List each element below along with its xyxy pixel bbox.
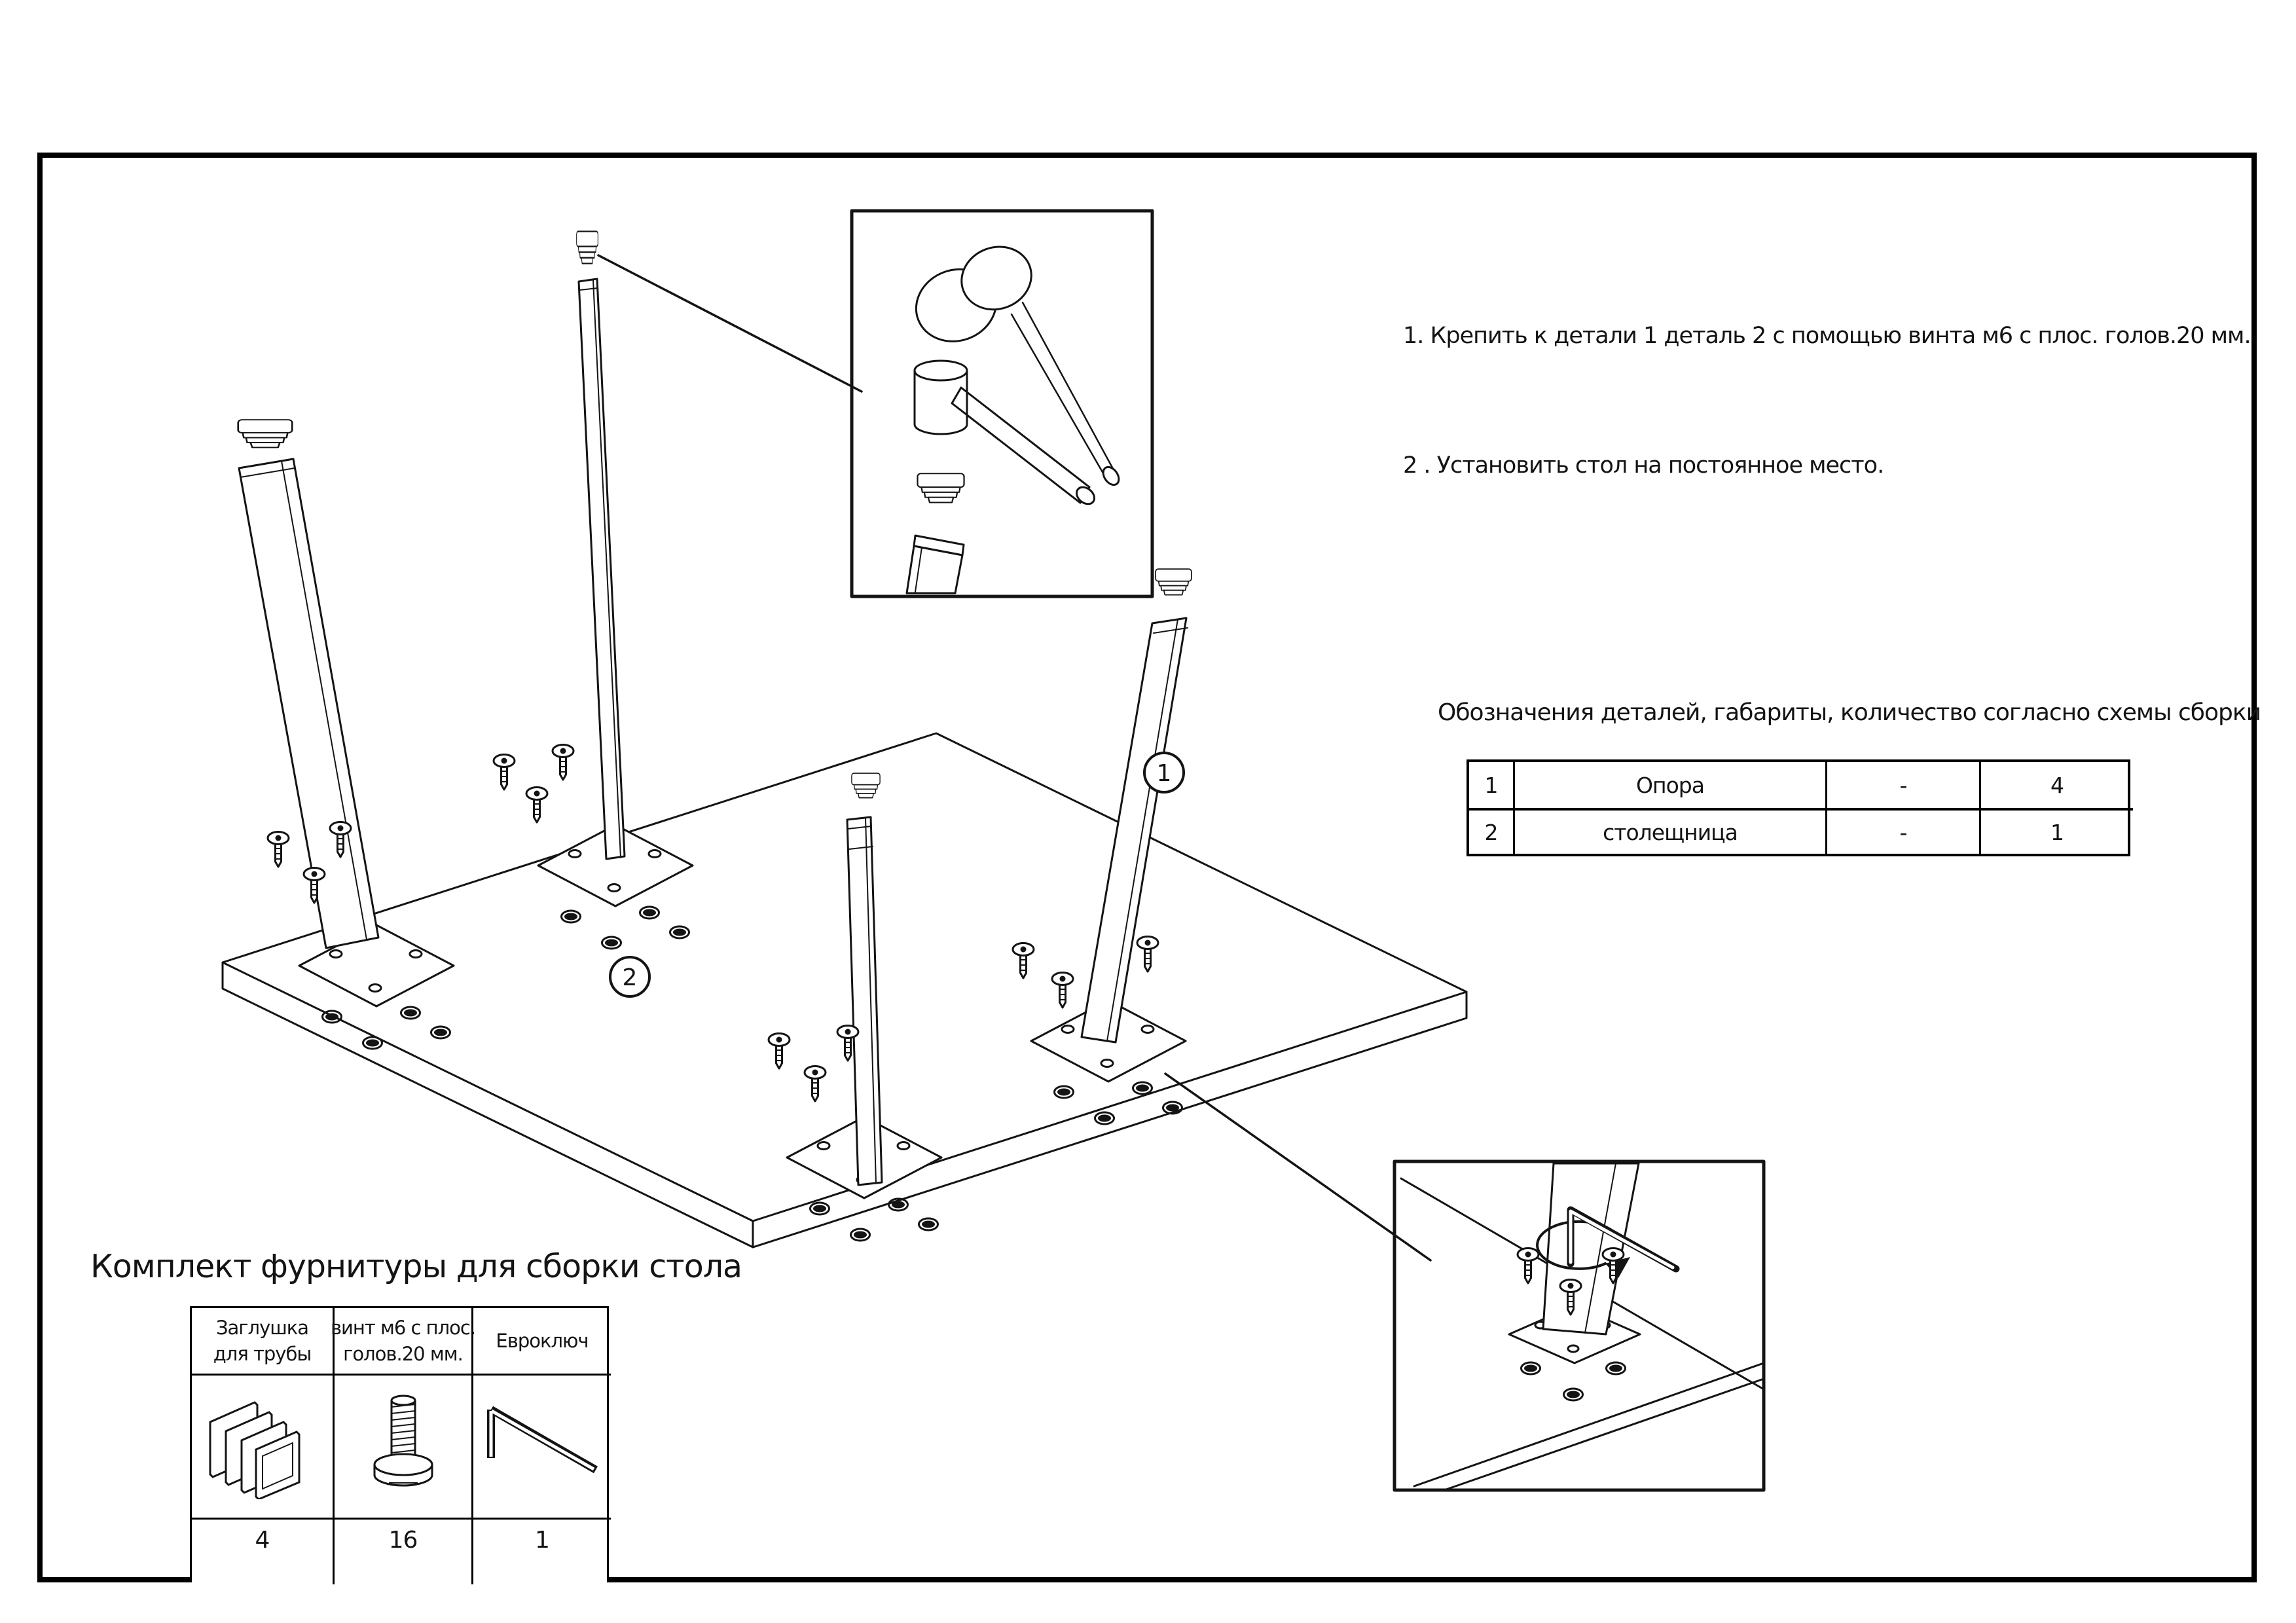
hardware-col2-header: винт м6 с плос. голов.20 мм. xyxy=(333,1308,471,1374)
parts-list-title: Обозначения деталей, габариты, количеств… xyxy=(1438,699,2261,726)
parts-row2-qty: 1 xyxy=(1979,808,2133,854)
assembly-instruction-sheet: 1 2 1. Крепить к детали 1 деталь 2 с пом… xyxy=(0,0,2296,1623)
hardware-col1-header: Заглушка для трубы xyxy=(192,1308,333,1374)
hardware-col1-line2: для трубы xyxy=(213,1341,312,1367)
hardware-col1-line1: Заглушка xyxy=(216,1315,308,1341)
parts-row2-name: столещница xyxy=(1513,808,1825,854)
parts-row1-qty: 4 xyxy=(1979,762,2133,808)
hardware-col3-image xyxy=(471,1374,611,1518)
hardware-kit-table: Заглушка для трубы винт м6 с плос. голов… xyxy=(190,1306,609,1582)
hardware-col3-qty: 1 xyxy=(471,1518,611,1584)
hardware-col3-line1: Евроключ xyxy=(496,1328,588,1354)
parts-row2-dims: - xyxy=(1825,808,1979,854)
hex-key-icon xyxy=(477,1398,608,1496)
pipe-cap-stack-icon xyxy=(204,1395,321,1499)
parts-row1-name: Опора xyxy=(1513,762,1825,808)
hardware-col2-image xyxy=(333,1374,471,1518)
hardware-col1-qty: 4 xyxy=(192,1518,333,1584)
parts-row1-dims: - xyxy=(1825,762,1979,808)
hardware-kit-title: Комплект фурнитуры для сборки стола xyxy=(90,1248,742,1285)
flat-head-screw-icon xyxy=(367,1391,439,1503)
assembly-instructions: 1. Крепить к детали 1 деталь 2 с помощью… xyxy=(1403,228,2251,574)
hardware-col2-line2: голов.20 мм. xyxy=(343,1341,463,1367)
parts-row1-num: 1 xyxy=(1469,762,1513,808)
parts-list-table: 1 Опора - 4 2 столещница - 1 xyxy=(1467,759,2130,856)
hardware-col2-line1: винт м6 с плос. xyxy=(331,1315,475,1341)
hardware-col2-qty: 16 xyxy=(333,1518,471,1584)
hardware-col1-image xyxy=(192,1374,333,1518)
instruction-step-1: 1. Крепить к детали 1 деталь 2 с помощью… xyxy=(1403,314,2251,357)
hardware-col3-header: Евроключ xyxy=(471,1308,611,1374)
instruction-step-2: 2 . Установить стол на постоянное место. xyxy=(1403,444,2251,487)
parts-row2-num: 2 xyxy=(1469,808,1513,854)
